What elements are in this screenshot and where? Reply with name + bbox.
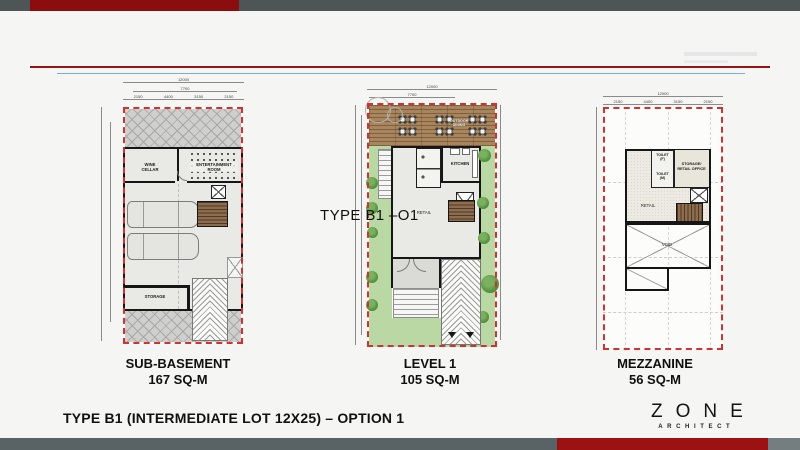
ramp-hatch [193,279,210,340]
dining-table-icon [435,127,444,136]
dim-line [603,104,723,105]
kitchen-appliance [462,148,470,155]
dim-line [367,89,497,90]
footer-bar-red [557,438,768,450]
room-label-entertainment: ENTERTAINMENT ROOM [190,162,238,172]
ramp-arrow-icon [448,332,456,338]
tree-icon [478,149,491,162]
tree-icon [478,232,490,244]
presentation-slide: { "slide": { "watermark": "TYPE B1 –O1",… [0,0,800,450]
dining-table-icon [435,115,444,124]
tree-icon [481,275,499,293]
stairs-icon [448,200,475,222]
room-label-void: VOID [653,242,681,247]
dim-line [355,105,356,345]
stairs-icon [676,203,703,222]
zone-architect-logo: ZONE ARCHITECT [638,402,750,430]
dim-line [603,96,723,97]
room-label-toilet-m: TOILET (M) [651,172,674,181]
plan-caption-sub-basement: SUB-BASEMENT 167 SQ-M [88,356,268,389]
cross-braced-area [227,257,243,278]
dim-line [123,99,244,100]
plan-caption-level-1: LEVEL 1 105 SQ-M [355,356,505,389]
plan-name: LEVEL 1 [355,356,505,372]
room-label-storage-office: STORAGE/ RETAIL OFFICE [674,162,709,171]
dining-table-icon [478,127,487,136]
ramp-hatch [210,279,227,340]
label-outdoor-dining: OUTDOOR DINING [450,119,468,128]
wall [441,181,479,183]
tree-icon [366,177,378,189]
room-label-kitchen: KITCHEN [445,161,475,166]
logo-wordmark: ZONE [638,402,750,423]
plan-area: 105 SQ-M [355,372,505,388]
faded-text-line [684,52,757,56]
header-blue-rule [57,73,745,75]
dining-table-icon [408,115,417,124]
dining-table-icon [398,127,407,136]
wall [123,285,189,288]
ramp [192,278,228,341]
elevator-icon [690,188,708,203]
plan-area: 167 SQ-M [88,372,268,388]
stairs-icon [197,201,228,227]
dining-table-icon [468,127,477,136]
faded-text-line [684,60,728,63]
ramp-arrow-icon [466,332,474,338]
footer-bar-gray [0,438,557,450]
dim-line [500,105,501,340]
footer-bar-gray-right [768,438,800,450]
room-label-storage: STORAGE [129,294,181,299]
grid-line [603,312,723,313]
dining-table-icon [408,127,417,136]
dim-line [101,107,102,341]
dim-line [596,107,597,350]
floor-plan-sub-basement: 12000 7700 2150440031502150 WINE CELLAR … [93,78,273,348]
plan-name: SUB-BASEMENT [88,356,268,372]
tree-icon [477,197,489,209]
dim-line [123,82,244,83]
dim-line [361,115,362,335]
toilet-rooms [416,148,441,188]
dim-line [133,91,237,92]
watermark-text: TYPE B1 –O1 [320,207,419,224]
plan-name: MEZZANINE [585,356,725,372]
logo-tagline: ARCHITECT [638,424,750,430]
kitchen-appliance [450,148,460,155]
dining-table-icon [445,127,454,136]
tree-icon [366,271,378,283]
elevator-icon [211,185,226,199]
plan-area: 56 SQ-M [585,372,725,388]
door-opening [175,181,187,183]
room-label-toilet-f: TOILET (F) [651,153,674,162]
car-icon [127,233,199,260]
floor-plan-mezzanine: 12000 2150440031502150 TOILET (F) TOILET… [593,92,733,358]
dim-segment-labels: 2150440031502150 [123,95,244,99]
entry-steps [393,288,439,318]
car-icon [127,201,199,228]
page-title: TYPE B1 (INTERMEDIATE LOT 12X25) – OPTIO… [63,410,404,426]
dining-table-icon [478,115,487,124]
wall [441,148,443,183]
unexcavated-hatch [125,109,241,147]
top-bar-red [30,0,239,11]
header-red-rule [30,66,770,69]
dining-table-icon [468,115,477,124]
void-area-notch [625,267,669,291]
tree-icon [367,227,378,238]
room-label-wine-cellar: WINE CELLAR [127,162,173,172]
tree-outline-icon [387,107,403,123]
dim-line [110,122,111,322]
ramp [441,259,481,345]
tree-icon [366,299,378,311]
wall [187,285,190,311]
plan-caption-mezzanine: MEZZANINE 56 SQ-M [585,356,725,389]
room-label-retail: RETAIL [633,203,663,208]
